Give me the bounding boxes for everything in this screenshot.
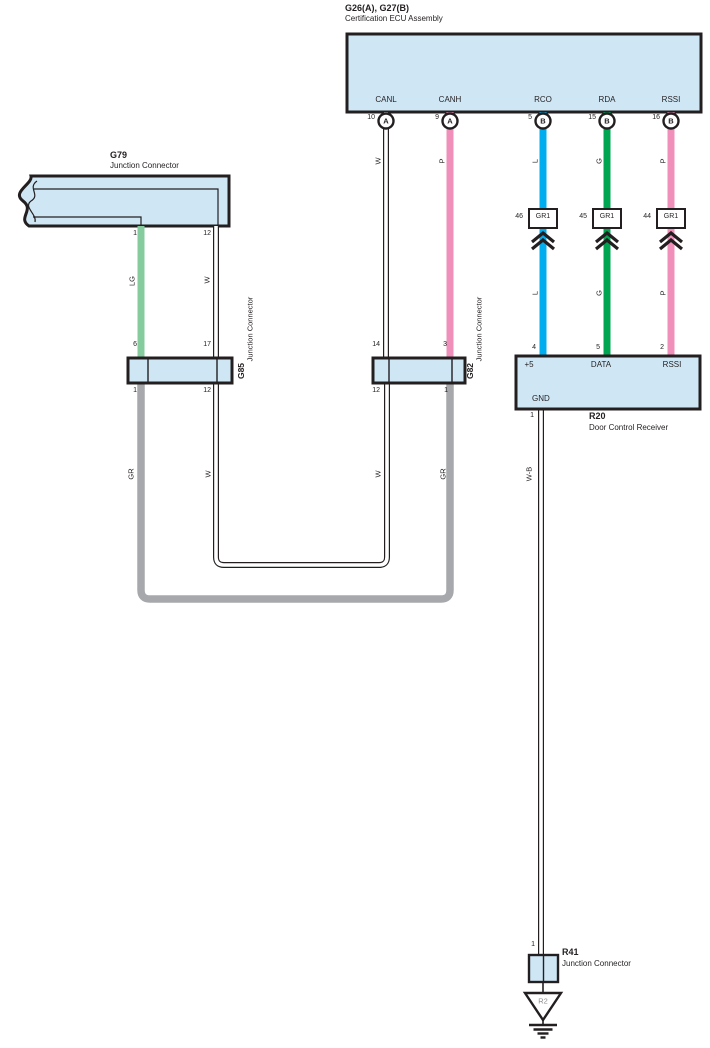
- r41-pin-1: 1: [531, 941, 535, 949]
- ecu-pin-label-canl: CANL: [375, 95, 396, 105]
- g82-pin-12: 12: [372, 387, 380, 395]
- g82-pin-3: 3: [443, 341, 447, 349]
- wire-label-gr-right: GR: [439, 468, 448, 479]
- ecu-pin-num-rco: 5: [528, 114, 532, 122]
- r20-pin-5: 5: [596, 344, 600, 352]
- g79-pin-12: 12: [203, 230, 211, 238]
- connector-letter-b2: B: [604, 117, 609, 126]
- ecu-pin-num-canl: 10: [367, 114, 375, 122]
- gr1-label-3: GR1: [664, 213, 678, 221]
- g79-id: G79: [110, 150, 127, 161]
- gr1-pin-46: 46: [515, 213, 523, 221]
- g85-pin-6: 6: [133, 341, 137, 349]
- g79-name: Junction Connector: [110, 161, 179, 171]
- wire-label-w-left: W: [204, 470, 213, 477]
- connector-letter-b3: B: [668, 117, 673, 126]
- ground-symbol: [525, 982, 561, 1038]
- ecu-pin-label-rssi: RSSI: [662, 95, 681, 105]
- r20-label-rssi: RSSI: [663, 360, 682, 370]
- r20-gnd-pin-1: 1: [530, 412, 534, 420]
- r20-label-plus5: +5: [524, 360, 533, 370]
- g79-pin-1: 1: [133, 230, 137, 238]
- gr1-label-2: GR1: [600, 213, 614, 221]
- wire-label-lg: LG: [128, 276, 137, 286]
- ecu-pin-num-rda: 15: [588, 114, 596, 122]
- r20-label-gnd: GND: [532, 394, 550, 404]
- g82-name: Junction Connector: [475, 297, 484, 362]
- r20-pin-4: 4: [532, 344, 536, 352]
- connector-letter-b1: B: [540, 117, 545, 126]
- g82-box: [373, 358, 465, 383]
- g82-pin-1: 1: [444, 387, 448, 395]
- ecu-pin-num-canh: 9: [435, 114, 439, 122]
- ecu-pin-num-rssi: 16: [652, 114, 660, 122]
- wire-loop-w: [216, 383, 387, 565]
- wire-label-wb: W-B: [525, 467, 534, 481]
- connector-letter-a2: A: [447, 117, 452, 126]
- g85-id: G85: [236, 363, 246, 379]
- g85-name: Junction Connector: [246, 297, 255, 362]
- gr1-label-1: GR1: [536, 213, 550, 221]
- ecu-id: G26(A), G27(B): [345, 3, 409, 14]
- wire-label-rssi-p: P: [659, 158, 668, 163]
- wiring-diagram: G26(A), G27(B) Certification ECU Assembl…: [0, 0, 710, 1048]
- g85-pin-12: 12: [203, 387, 211, 395]
- diagram-graphics: [0, 0, 710, 1048]
- ecu-name: Certification ECU Assembly: [345, 14, 443, 24]
- g82-id: G82: [465, 363, 475, 379]
- ecu-box: [347, 34, 701, 112]
- wire-label-rda-g: G: [595, 158, 604, 164]
- wire-label-w-right: W: [374, 470, 383, 477]
- g85-pin-17: 17: [203, 341, 211, 349]
- gr1-pin-45: 45: [579, 213, 587, 221]
- r41-name: Junction Connector: [562, 959, 631, 969]
- connector-letter-a1: A: [383, 117, 388, 126]
- r20-id: R20: [589, 411, 606, 422]
- wire-label-canl-w: W: [374, 157, 383, 164]
- ground-point-label: R2: [538, 997, 548, 1006]
- wire-label-lower-g: G: [595, 290, 604, 296]
- r41-box: [529, 955, 558, 982]
- g85-pin-1: 1: [133, 387, 137, 395]
- ecu-pin-label-rco: RCO: [534, 95, 552, 105]
- g82-pin-14: 14: [372, 341, 380, 349]
- r20-label-data: DATA: [591, 360, 611, 370]
- wire-label-lower-l: L: [531, 291, 540, 295]
- g79-shape: [19, 176, 229, 226]
- r20-pin-2: 2: [660, 344, 664, 352]
- wire-label-rco-l: L: [531, 159, 540, 163]
- r20-name: Door Control Receiver: [589, 423, 668, 433]
- wire-label-canh-p: P: [438, 158, 447, 163]
- r41-id: R41: [562, 947, 579, 958]
- wire-label-w1: W: [203, 276, 212, 283]
- wire-label-gr-left: GR: [127, 468, 136, 479]
- g85-box: [128, 358, 232, 383]
- wire-label-lower-p: P: [659, 290, 668, 295]
- ecu-pin-label-rda: RDA: [599, 95, 616, 105]
- gr1-pin-44: 44: [643, 213, 651, 221]
- ecu-pin-label-canh: CANH: [439, 95, 462, 105]
